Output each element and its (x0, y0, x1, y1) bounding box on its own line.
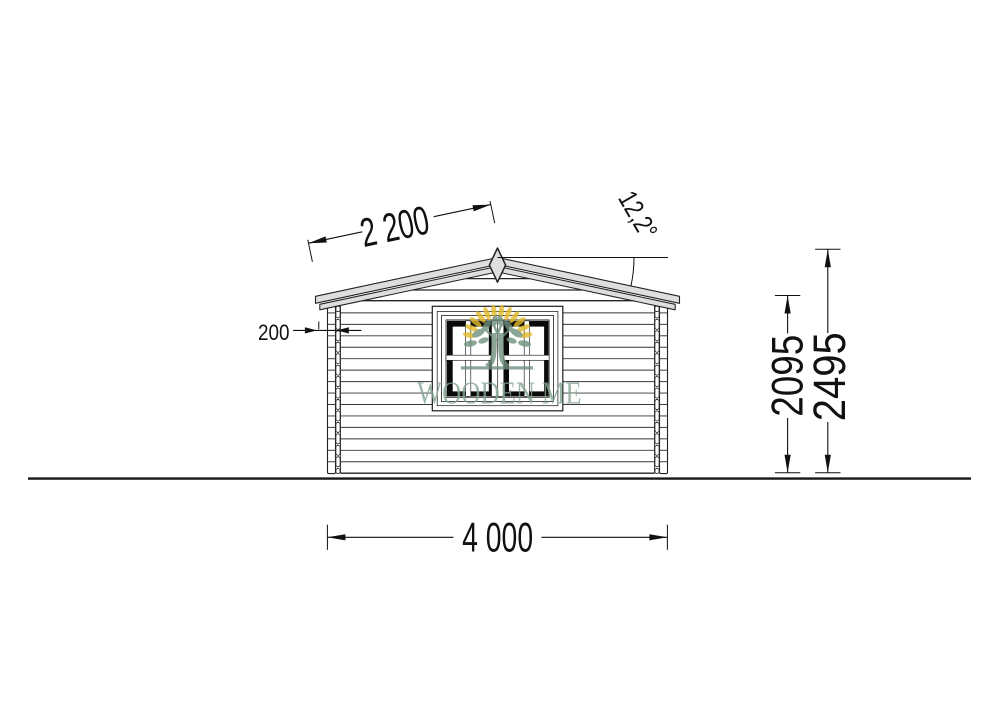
svg-text:200: 200 (258, 320, 290, 345)
svg-text:WOODEN ME: WOODEN ME (417, 375, 582, 410)
svg-text:12,2°: 12,2° (612, 186, 663, 244)
svg-text:2 200: 2 200 (356, 197, 433, 256)
svg-text:2495: 2495 (804, 332, 855, 421)
svg-text:4 000: 4 000 (462, 514, 533, 561)
